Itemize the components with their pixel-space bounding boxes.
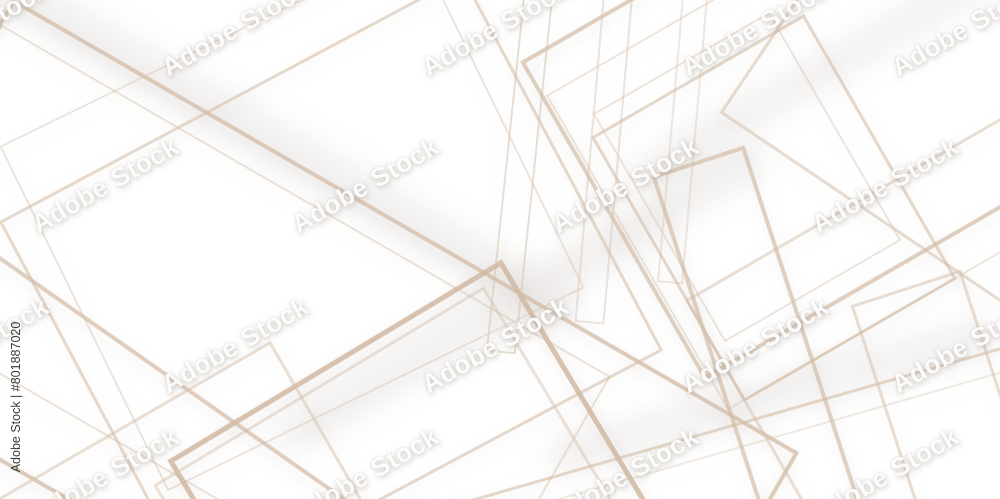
stock-image-abstract-background: Adobe Stock Adobe Stock Adobe Stock Adob… <box>0 0 1000 499</box>
